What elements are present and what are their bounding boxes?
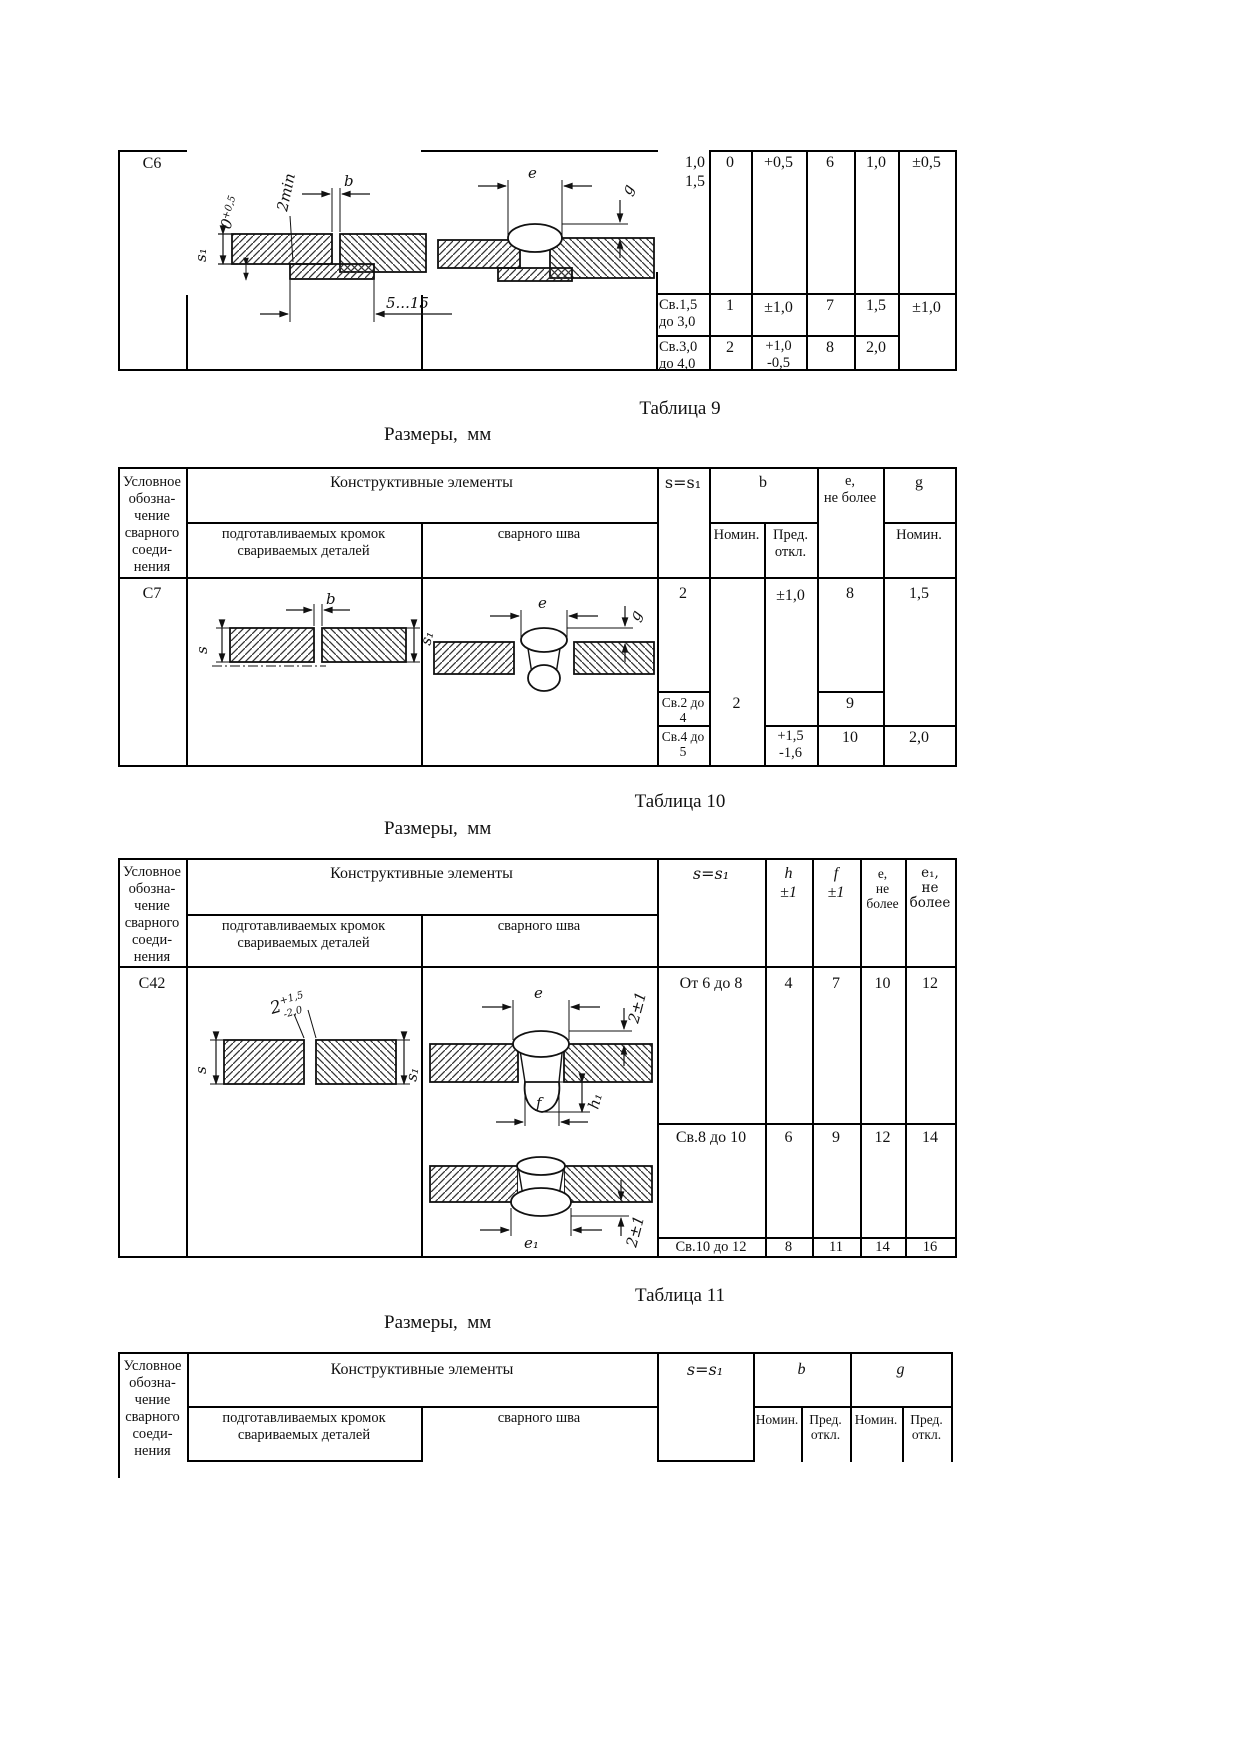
cell-h: 6 — [765, 1128, 812, 1147]
header-weld: сварного шва — [421, 918, 657, 935]
cell-e: 12 — [860, 1128, 905, 1147]
border-line — [118, 765, 957, 767]
cell-s: От 6 до 8 — [657, 974, 765, 993]
joint-code: С7 — [118, 584, 186, 603]
dim-label-s: s — [198, 1066, 210, 1074]
cell-h: 8 — [765, 1239, 812, 1256]
cell-e1: 16 — [905, 1239, 955, 1256]
table-caption: Таблица 11 — [595, 1285, 765, 1307]
border-line — [883, 522, 957, 524]
cell-s: Св.4 до 5 — [657, 729, 709, 759]
border-line — [955, 467, 957, 767]
cell-e: 9 — [817, 694, 883, 713]
header-b: b — [709, 473, 817, 492]
border-line — [955, 858, 957, 1258]
cell-e: 14 — [860, 1239, 905, 1256]
dim-label-e: e — [528, 164, 537, 182]
border-line — [186, 295, 188, 371]
cell-b-dev: ±1,0 — [751, 298, 806, 317]
cell-g: 2,0 — [883, 728, 955, 747]
svg-text:+0,5: +0,5 — [220, 194, 238, 221]
border-line — [765, 858, 767, 1258]
header-g: g — [883, 473, 955, 492]
header-weld: сварного шва — [421, 526, 657, 543]
header-b: b — [753, 1360, 850, 1379]
header-h: h ±1 — [765, 864, 812, 902]
border-line — [118, 467, 957, 469]
border-line — [709, 150, 957, 152]
sizes-label: Размеры, мм — [384, 424, 604, 446]
cell-b-nom: 0 — [709, 153, 751, 172]
dim-label-h1: h₁ — [584, 1091, 605, 1111]
border-line — [118, 1256, 957, 1258]
cell-g-nom: 1,0 — [854, 153, 898, 172]
cell-e: 10 — [817, 728, 883, 747]
dim-label-2pm1: 2±1 — [624, 990, 650, 1026]
svg-text:-2,0: -2,0 — [282, 1005, 304, 1021]
dim-label-e: e — [538, 594, 547, 612]
header-e: е, не более — [860, 866, 905, 911]
border-line — [186, 467, 188, 767]
header-constructive: Конструктивные элементы — [187, 1360, 657, 1379]
cell-e1: 14 — [905, 1128, 955, 1147]
cell-b-dev: +0,5 — [751, 153, 806, 172]
header-e1: е₁, не более — [905, 866, 955, 911]
cell-s: Св.3,0 до 4,0 — [659, 339, 709, 373]
cell-f: 9 — [812, 1128, 860, 1147]
diagram-c7-prepared-edges: s s₁ b — [196, 592, 434, 704]
border-line — [657, 691, 710, 693]
border-line — [187, 1460, 421, 1462]
table-caption: Таблица 10 — [595, 791, 765, 813]
diagram-c42-prepared-edges: s s₁ 2 +1,5 -2,0 — [198, 980, 420, 1120]
dim-label-gap2: 2 +1,5 -2,0 — [267, 990, 309, 1024]
dim-label-b: b — [326, 592, 336, 608]
cell-s: Св.2 до 4 — [657, 695, 709, 725]
cell-b-dev: +1,0 -0,5 — [751, 338, 806, 372]
dim-label-s1: s₁ — [192, 248, 210, 262]
cell-e1: 12 — [905, 974, 955, 993]
cell-b-dev: +1,5 -1,6 — [764, 728, 817, 762]
cell-s: Св.10 до 12 — [657, 1239, 765, 1256]
header-symbol: Условное обозна- чение сварного соеди- н… — [118, 474, 186, 576]
cell-e: 6 — [806, 153, 854, 172]
sizes-label: Размеры, мм — [384, 818, 604, 840]
dim-label-gap: 0 +0,5 — [217, 194, 244, 231]
border-line — [657, 725, 710, 727]
header-nom: Номин. — [753, 1412, 801, 1427]
header-dev: Пред. откл. — [902, 1412, 951, 1442]
joint-code: С42 — [118, 974, 186, 993]
border-line — [883, 467, 885, 767]
cell-e: 10 — [860, 974, 905, 993]
cell-b-nom: 2 — [709, 338, 751, 357]
border-line — [118, 369, 957, 371]
header-nom: Номин. — [850, 1412, 902, 1427]
header-nom: Номин. — [883, 527, 955, 544]
cell-e: 7 — [806, 296, 854, 315]
dim-label-2pm1: 2±1 — [622, 1214, 648, 1250]
cell-g: 1,5 — [883, 584, 955, 603]
border-line — [817, 691, 883, 693]
header-nom: Номин. — [709, 527, 764, 544]
dim-label-e1: e₁ — [524, 1234, 539, 1252]
border-line — [898, 150, 900, 371]
header-prep: подготавливаемых кромок свариваемых дета… — [187, 1410, 421, 1444]
border-line — [657, 1460, 753, 1462]
border-line — [118, 966, 957, 968]
diagram-c42-weld-bottom: e₁ 2±1 — [424, 1136, 658, 1254]
dim-label-g: g — [617, 181, 637, 197]
border-line — [709, 467, 711, 767]
header-constructive: Конструктивные элементы — [186, 864, 657, 883]
header-f: f ±1 — [812, 864, 860, 902]
cell-b-dev: ±1,0 — [764, 586, 817, 605]
cell-e: 8 — [806, 338, 854, 357]
dim-label-g: g — [625, 607, 645, 623]
border-line — [657, 1123, 957, 1125]
header-dev: Пред. откл. — [801, 1412, 850, 1442]
border-line — [118, 150, 187, 152]
border-line — [955, 150, 957, 371]
border-line — [118, 150, 120, 371]
cell-g-nom: 2,0 — [854, 338, 898, 357]
cell-s: Св.1,5 до 3,0 — [659, 297, 709, 331]
border-line — [118, 1352, 953, 1354]
header-s: s=s₁ — [657, 1360, 753, 1379]
dim-label-e: e — [534, 984, 543, 1002]
cell-g-dev: ±1,0 — [898, 298, 955, 317]
diagram-c42-weld-top: e 2±1 h₁ f — [424, 980, 658, 1130]
diagram-c6-prepared-edges: s₁ 0 +0,5 2min b 5...15 — [190, 152, 472, 348]
document-page: С6 s₁ 0 +0,5 2min b 5...15 — [0, 0, 1240, 1753]
header-prep: подготавливаемых кромок свариваемых дета… — [186, 526, 421, 560]
cell-s: 2 — [657, 584, 709, 603]
cell-e: 8 — [817, 584, 883, 603]
border-line — [657, 335, 898, 337]
cell-g-dev: ±0,5 — [898, 153, 955, 172]
border-line — [753, 1406, 953, 1408]
border-line — [812, 858, 814, 1258]
svg-text:+1,5: +1,5 — [278, 990, 304, 1007]
border-line — [817, 467, 819, 767]
header-dev: Пред. откл. — [764, 527, 817, 561]
header-g: g — [850, 1360, 951, 1379]
dim-label-2min: 2min — [273, 172, 299, 214]
border-line — [764, 725, 957, 727]
cell-b-nom: 2 — [709, 694, 764, 713]
border-line — [709, 522, 817, 524]
cell-f: 7 — [812, 974, 860, 993]
border-line — [118, 577, 957, 579]
cell-s: 1,0 1,5 — [655, 153, 705, 191]
border-line — [951, 1352, 953, 1462]
border-line — [860, 858, 862, 1258]
header-symbol: Условное обозна- чение сварного соеди- н… — [118, 864, 186, 966]
header-symbol: Условное обозна- чение сварного соеди- н… — [118, 1358, 187, 1460]
header-prep: подготавливаемых кромок свариваемых дета… — [186, 918, 421, 952]
header-s: s=s₁ — [657, 864, 765, 883]
table-caption: Таблица 9 — [600, 398, 760, 420]
dim-label-s1: s₁ — [402, 1066, 420, 1083]
cell-g-nom: 1,5 — [854, 296, 898, 315]
cell-f: 11 — [812, 1239, 860, 1256]
header-weld: сварного шва — [421, 1410, 657, 1427]
cell-h: 4 — [765, 974, 812, 993]
sizes-label: Размеры, мм — [384, 1312, 604, 1334]
dim-label-s: s — [196, 646, 211, 654]
cell-s: Св.8 до 10 — [657, 1128, 765, 1147]
header-e: е, не более — [817, 473, 883, 507]
header-s: s=s₁ — [657, 473, 709, 492]
header-constructive: Конструктивные элементы — [186, 473, 657, 492]
dim-label-b: b — [344, 172, 354, 190]
border-line — [118, 858, 957, 860]
joint-code: С6 — [120, 154, 184, 173]
dim-label-5-15: 5...15 — [386, 294, 429, 312]
cell-b-nom: 1 — [709, 296, 751, 315]
diagram-c7-weld: e g — [428, 592, 660, 712]
border-line — [421, 914, 423, 1258]
border-line — [905, 858, 907, 1258]
diagram-c6-weld: e g — [432, 150, 660, 318]
